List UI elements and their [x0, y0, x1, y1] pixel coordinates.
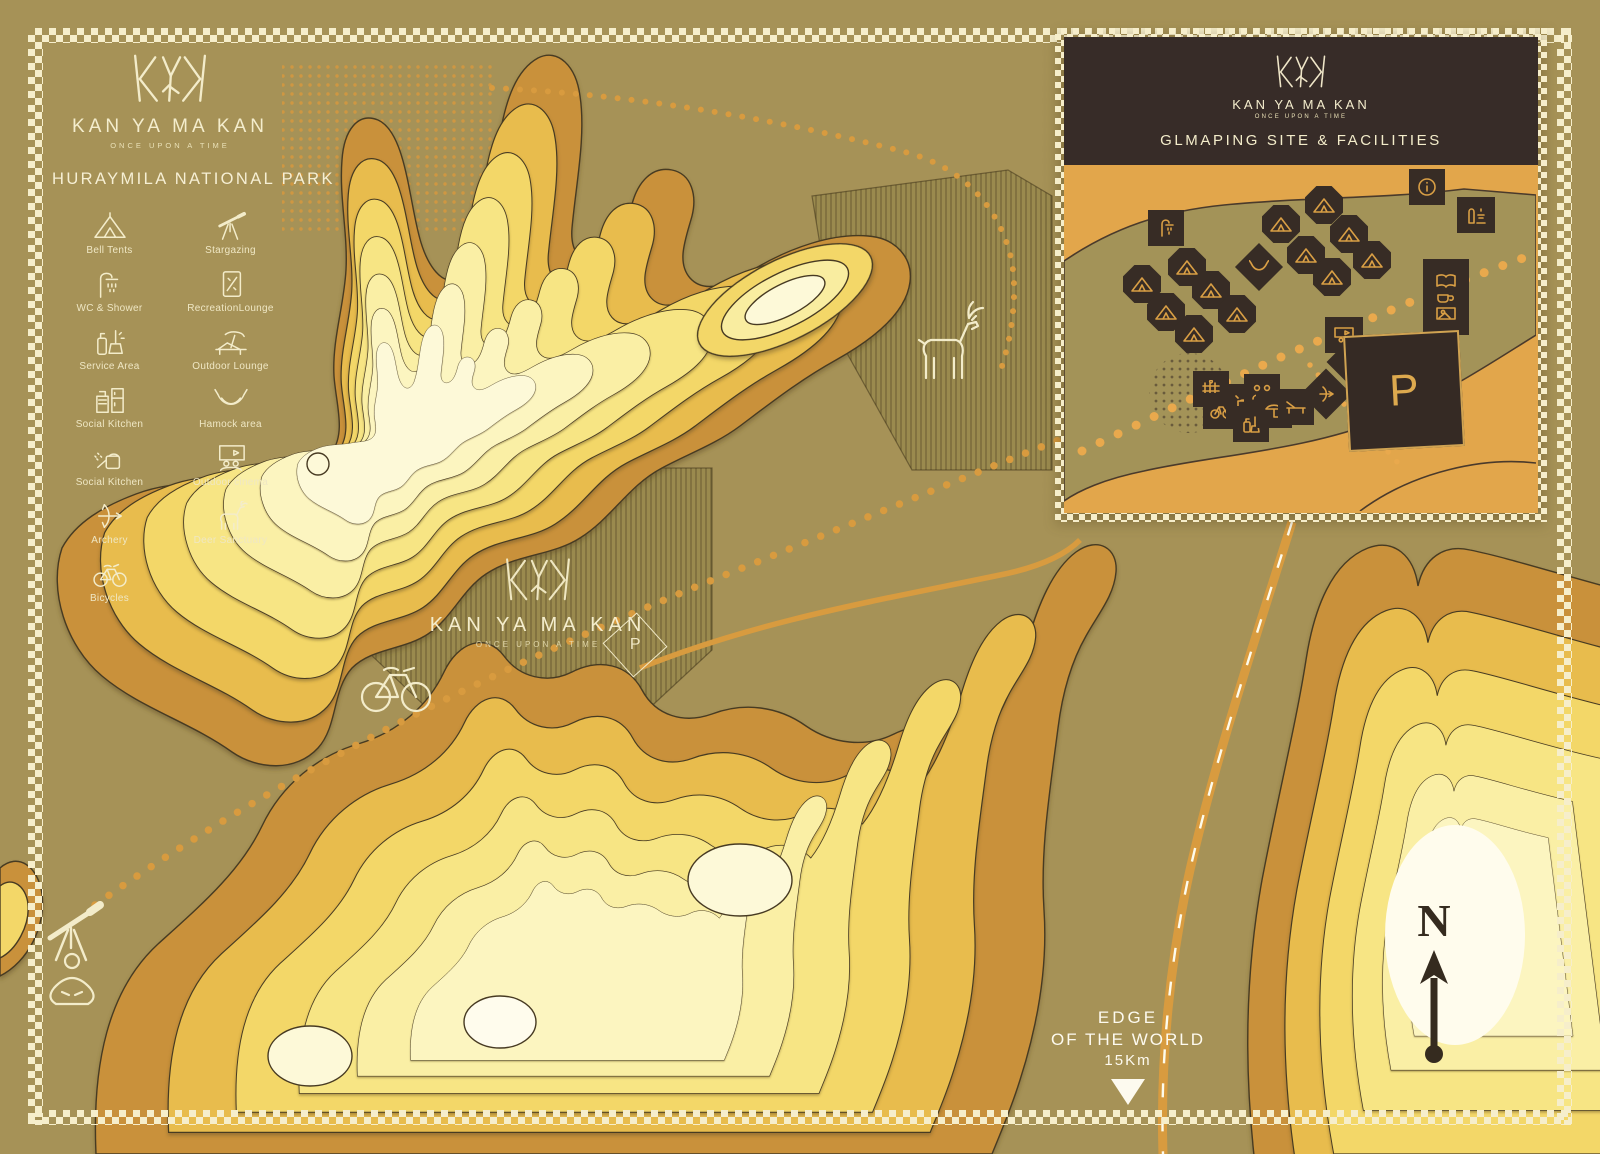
parking-lot: P — [1343, 330, 1465, 452]
cleaning-icon — [90, 327, 130, 357]
recreation-marker — [1423, 259, 1469, 335]
border-bottom — [28, 1110, 1572, 1125]
legend-item-stargazing: Stargazing — [173, 211, 288, 256]
kitchen-icon — [90, 385, 130, 415]
telescope-icon — [211, 211, 251, 241]
parking-letter: P — [1388, 365, 1420, 416]
legend-item-social-kitchen: Social Kitchen — [52, 385, 167, 430]
inset-title: GLMAPING SITE & FACILITIES — [1064, 132, 1538, 149]
shower-marker — [1148, 210, 1184, 246]
game-cards-icon — [211, 269, 251, 299]
wc-marker — [1457, 197, 1495, 233]
inset-header: KAN YA MA KAN ONCE UPON A TIME GLMAPING … — [1064, 37, 1538, 165]
kyk-logo — [1266, 51, 1336, 93]
parking-letter: P — [630, 636, 641, 654]
legend-item-recreation-lounge: RecreationLounge — [173, 269, 288, 314]
north-label: N — [1406, 898, 1462, 944]
shower-icon — [90, 269, 130, 299]
legend-item-deer-sanctuary: Deer Sanctuary — [173, 501, 288, 546]
legend-panel: KAN YA MA KAN ONCE UPON A TIME HURAYMILA… — [52, 48, 288, 604]
border-left — [28, 28, 43, 1125]
legend-item-hamock-area: Hamock area — [173, 385, 288, 430]
edge-line3: 15Km — [1038, 1052, 1218, 1069]
legend-item-outdoor-lounge: Outdoor Lounge — [173, 327, 288, 372]
edge-line2: OF THE WORLD — [1038, 1030, 1218, 1050]
kyk-logo — [118, 48, 222, 110]
glamping-inset-map: KAN YA MA KAN ONCE UPON A TIME GLMAPING … — [1055, 28, 1547, 522]
info-marker — [1409, 169, 1445, 205]
brand-tagline: ONCE UPON A TIME — [1064, 114, 1538, 120]
border-right — [1557, 28, 1572, 1125]
stargazer-person-icon — [50, 954, 93, 1004]
legend-item-social-kitchen-2: Social Kitchen — [52, 443, 167, 488]
legend-item-service-area: Service Area — [52, 327, 167, 372]
lounge-chair-icon — [211, 327, 251, 357]
bicycle-icon — [90, 559, 130, 589]
direction-triangle-icon — [1111, 1079, 1145, 1105]
park-title: HURAYMILA NATIONAL PARK — [52, 170, 288, 189]
deer-icon — [211, 501, 251, 531]
edge-of-the-world-marker: EDGE OF THE WORLD 15Km — [1038, 1008, 1218, 1105]
legend-item-archery: Archery — [52, 501, 167, 546]
legend-item-bell-tents: Bell Tents — [52, 211, 167, 256]
park-map-poster: { "colors": { "background": "#a69257", "… — [0, 0, 1600, 1154]
hammock-icon — [211, 385, 251, 415]
archery-icon — [90, 501, 130, 531]
watering-can-icon — [90, 443, 130, 473]
legend-item-outdoor-cinema: Outdoor cinema — [173, 443, 288, 488]
brand-name: KAN YA MA KAN — [52, 116, 288, 138]
inset-inner: KAN YA MA KAN ONCE UPON A TIME GLMAPING … — [1064, 37, 1538, 513]
kyk-logo — [492, 552, 584, 608]
cinema-icon — [211, 443, 251, 473]
legend-item-wc-shower: WC & Shower — [52, 269, 167, 314]
telescope-map-icon — [50, 905, 100, 960]
legend-items: Bell Tents Stargazing WC & Shower Recrea… — [52, 211, 288, 604]
tent-icon — [90, 211, 130, 241]
compass-north: N — [1406, 898, 1462, 1069]
inset-map-body: P — [1064, 165, 1538, 513]
brand-tagline: ONCE UPON A TIME — [52, 141, 288, 150]
legend-item-bicycles: Bicycles — [52, 559, 167, 604]
brand-name: KAN YA MA KAN — [1064, 97, 1538, 112]
edge-line1: EDGE — [1038, 1008, 1218, 1028]
north-arrow-icon — [1406, 944, 1462, 1064]
